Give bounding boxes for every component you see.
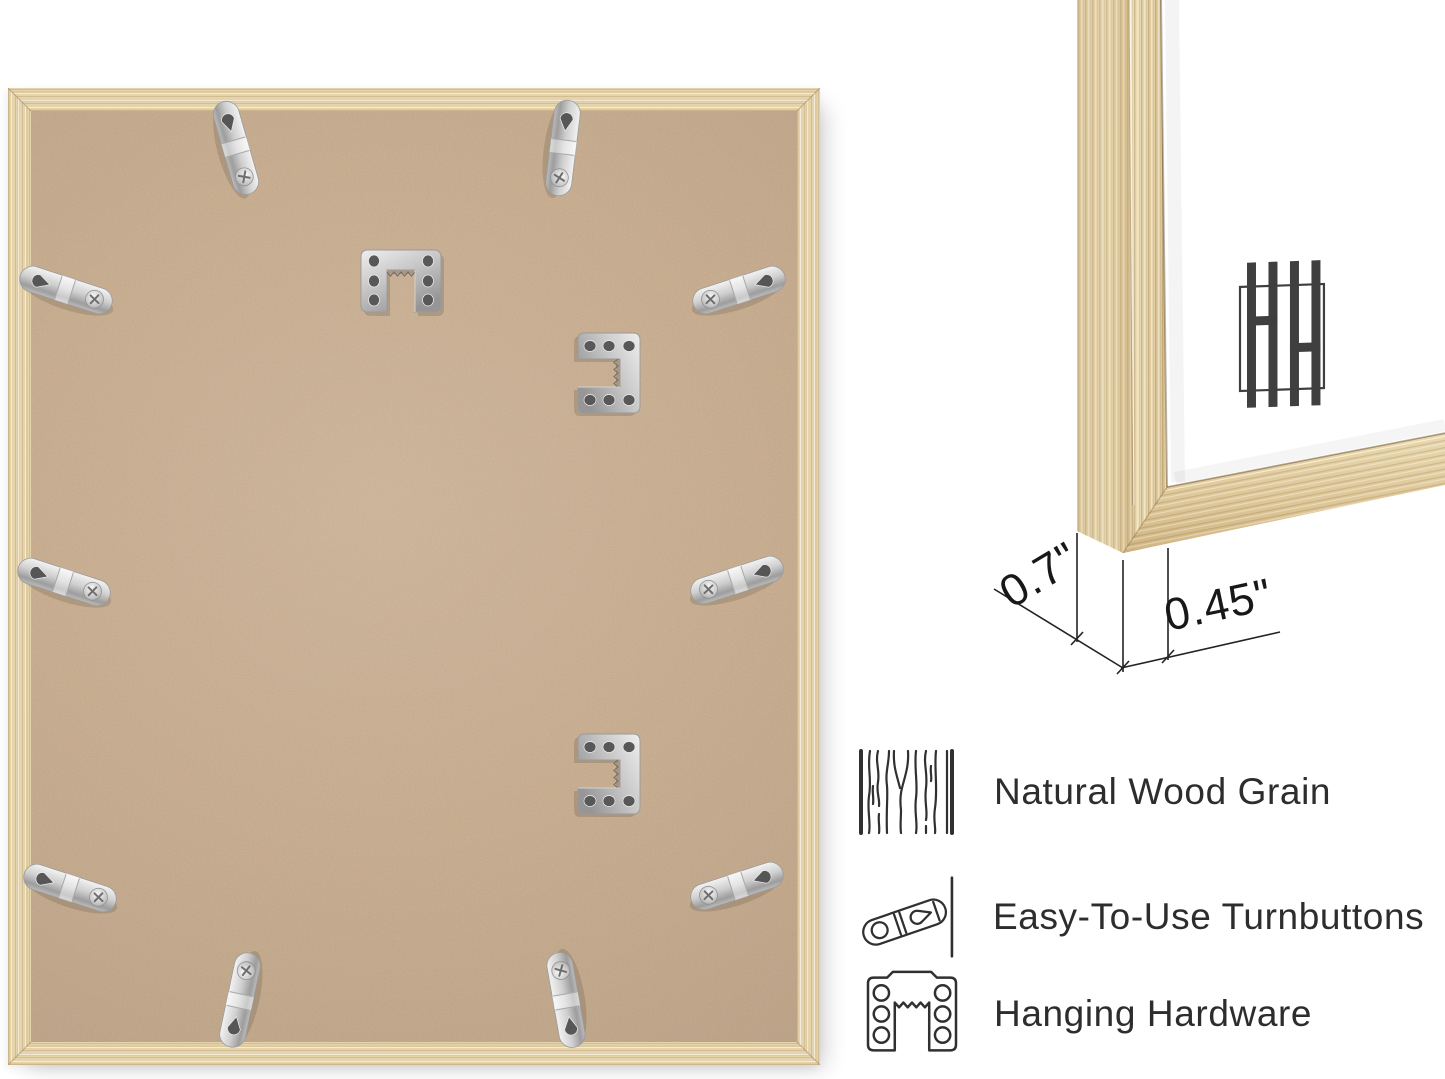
turnbutton-icon [853,874,963,960]
turnbutton [684,859,788,920]
hanging-hardware-icon [856,970,968,1058]
sawtooth-hanger [361,250,444,316]
feature-label: Easy-To-Use Turnbuttons [993,896,1424,938]
turnbutton [544,946,593,1049]
feature-label: Natural Wood Grain [994,771,1331,813]
turnbutton [205,98,263,202]
turnbutton [538,98,582,200]
feature-row: Easy-To-Use Turnbuttons [853,874,1424,960]
feature-label: Hanging Hardware [994,993,1312,1035]
hardware-layer [8,88,820,1065]
turnbutton [12,555,116,616]
turnbutton [217,947,269,1050]
sawtooth-hanger [574,333,640,416]
feature-row: Hanging Hardware [856,970,1312,1058]
turnbutton [684,553,788,614]
wood-frame-corner [1077,0,1445,553]
frame-back-photo [8,88,820,1065]
sawtooth-hanger [574,734,640,817]
brand-logo-hh [1240,260,1324,408]
wood-grain-icon [856,748,956,836]
turnbutton [14,263,118,324]
turnbutton [686,263,790,324]
product-image: 0.7" 0.45" Natural Wood Grain [0,0,1445,1079]
mitre-joints [8,88,820,1065]
feature-row: Natural Wood Grain [856,748,1331,836]
turnbutton [18,861,122,922]
